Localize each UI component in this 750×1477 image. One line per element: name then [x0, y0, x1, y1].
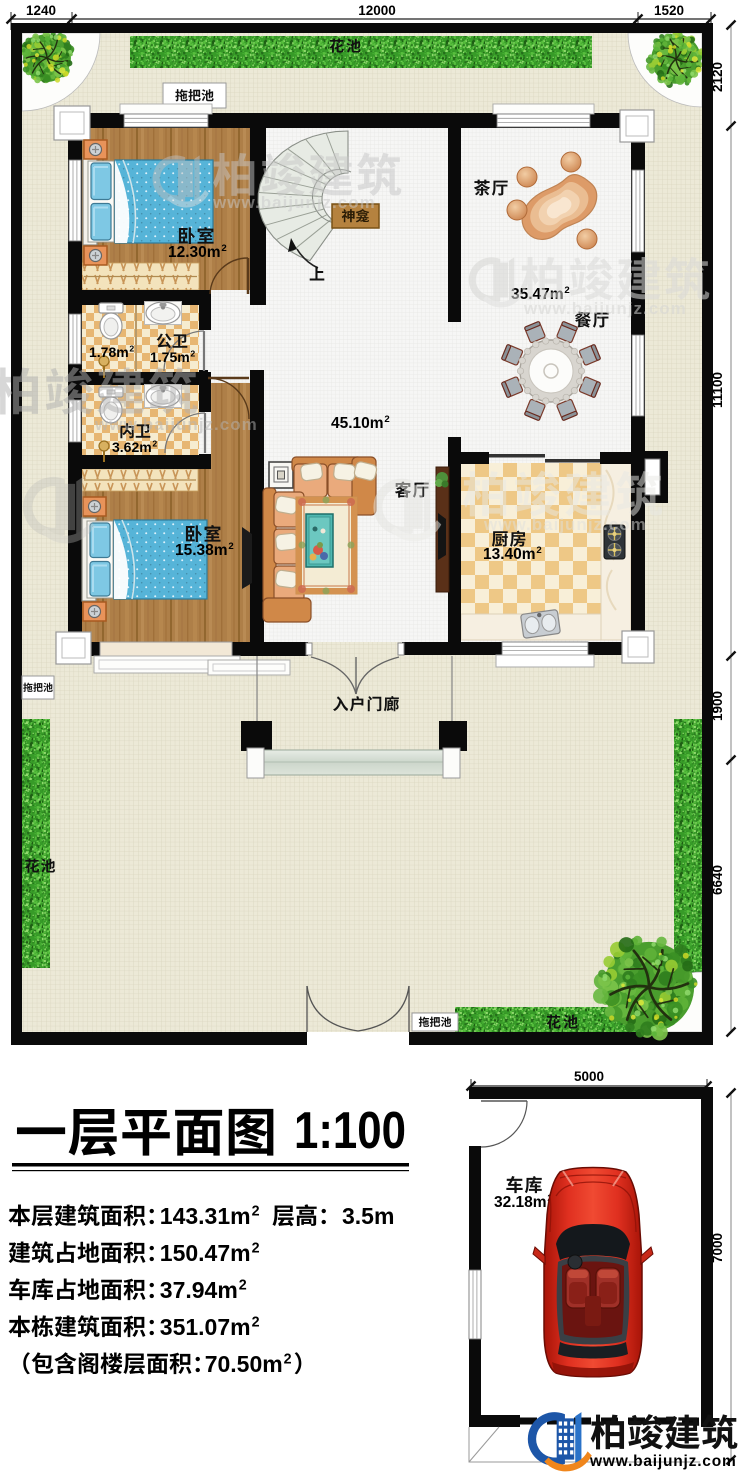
svg-text:www.baijunjz.com: www.baijunjz.com [523, 299, 687, 318]
svg-text:12.30m: 12.30m [168, 244, 221, 261]
svg-text:2: 2 [252, 1240, 260, 1256]
svg-text:2: 2 [564, 285, 569, 296]
svg-text:45.10m: 45.10m [331, 415, 384, 432]
svg-text:32.18m: 32.18m [494, 1194, 547, 1211]
svg-text:12000: 12000 [358, 3, 396, 18]
svg-text:2: 2 [284, 1351, 292, 1367]
svg-text:1240: 1240 [26, 3, 56, 18]
svg-text:2: 2 [221, 243, 226, 254]
svg-text:2: 2 [129, 344, 134, 354]
svg-text:3.62m: 3.62m [112, 439, 152, 455]
svg-text:2: 2 [252, 1203, 260, 1219]
svg-text:15.38m: 15.38m [175, 542, 228, 559]
svg-text:2: 2 [239, 1277, 247, 1293]
svg-text:2: 2 [384, 414, 389, 425]
svg-text:www.baijunjz.com: www.baijunjz.com [483, 515, 647, 534]
svg-text:70.50m: 70.50m [205, 1351, 283, 1377]
svg-text:3.5m: 3.5m [342, 1203, 394, 1229]
svg-text:1:100: 1:100 [294, 1102, 406, 1160]
svg-text:2: 2 [152, 439, 157, 449]
svg-text:2: 2 [190, 349, 195, 359]
svg-text:351.07m: 351.07m [160, 1314, 251, 1340]
svg-text:2: 2 [252, 1314, 260, 1330]
svg-text:1520: 1520 [654, 3, 684, 18]
svg-text:www.baijunjz.com: www.baijunjz.com [212, 193, 376, 212]
svg-text:1.75m: 1.75m [150, 349, 190, 365]
svg-text:www.baijunjz.com: www.baijunjz.com [94, 415, 258, 434]
svg-text:2: 2 [536, 545, 541, 556]
svg-text:www.baijunjz.com: www.baijunjz.com [589, 1453, 737, 1470]
svg-text:2: 2 [228, 541, 233, 552]
svg-text:143.31m: 143.31m [160, 1203, 251, 1229]
svg-text:5000: 5000 [574, 1069, 604, 1084]
svg-text:37.94m: 37.94m [160, 1277, 238, 1303]
svg-text:1.78m: 1.78m [89, 344, 129, 360]
svg-text:13.40m: 13.40m [483, 546, 536, 563]
svg-text:150.47m: 150.47m [160, 1240, 251, 1266]
